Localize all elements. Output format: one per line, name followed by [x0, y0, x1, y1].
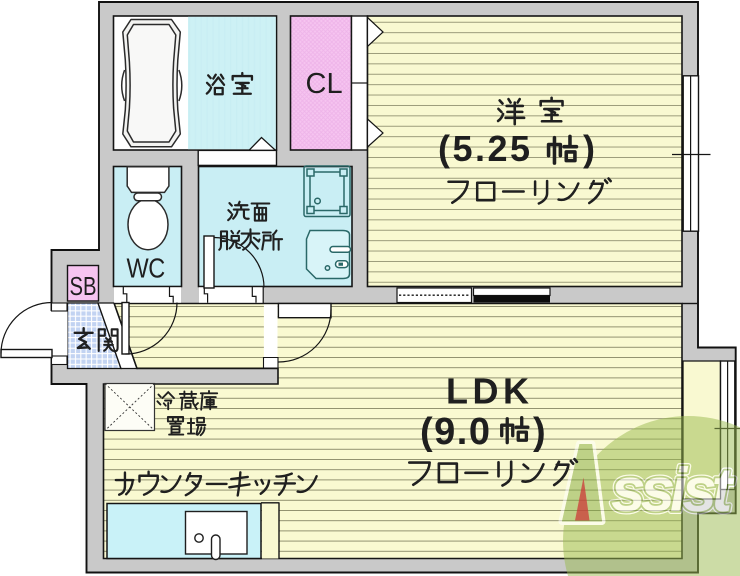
- svg-text:ssist: ssist: [611, 456, 735, 525]
- svg-text:): ): [583, 128, 595, 169]
- svg-text:(5.25: (5.25: [438, 128, 533, 169]
- svg-text:WC: WC: [127, 254, 165, 284]
- svg-text:SB: SB: [70, 272, 97, 301]
- svg-text:): ): [533, 411, 546, 453]
- svg-text:(9.0: (9.0: [420, 411, 491, 453]
- svg-text:LDK: LDK: [446, 371, 534, 412]
- svg-text:CL: CL: [306, 68, 343, 100]
